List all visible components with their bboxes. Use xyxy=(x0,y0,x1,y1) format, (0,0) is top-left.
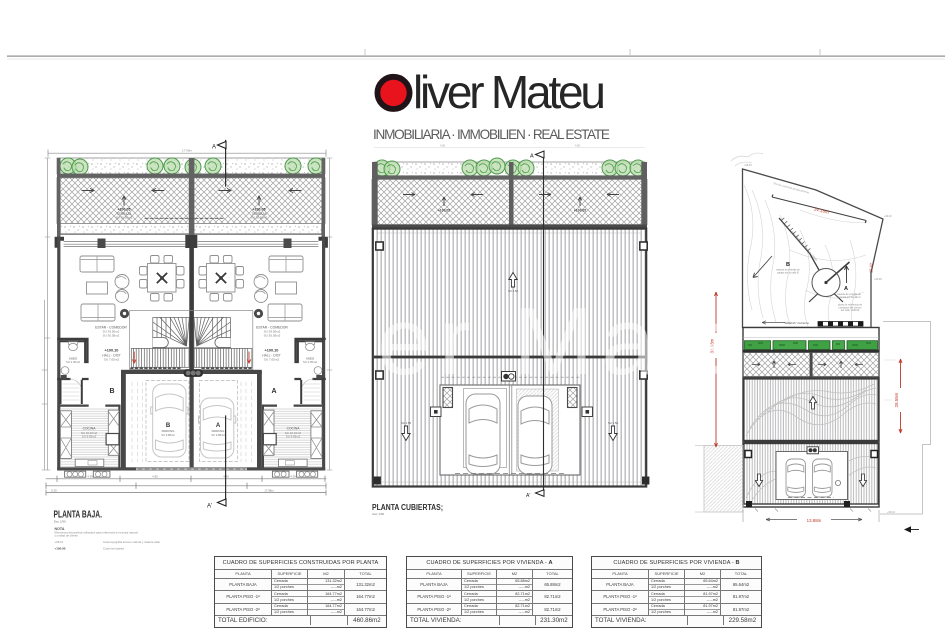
svg-text:PARKING: PARKING xyxy=(212,429,226,433)
svg-text:SU 30.50m2: SU 30.50m2 xyxy=(251,216,268,220)
svg-text:+99.10: +99.10 xyxy=(55,540,64,544)
svg-text:4.90: 4.90 xyxy=(440,144,446,148)
svg-text:liver Mateu: liver Mateu xyxy=(413,66,606,118)
svg-text:SU 30.50m2: SU 30.50m2 xyxy=(116,216,133,220)
svg-text:SU 30.05m2: SU 30.05m2 xyxy=(103,333,120,337)
svg-text:15.87: 15.87 xyxy=(868,262,873,273)
svg-text:A: A xyxy=(212,145,216,151)
svg-text:SU 1.56: SU 1.56 xyxy=(401,421,412,425)
svg-text:+100.00: +100.00 xyxy=(55,547,66,551)
svg-text:vivienda por la calle A: vivienda por la calle A xyxy=(837,296,861,299)
svg-text:SU 1.56: SU 1.56 xyxy=(608,421,619,425)
svg-text:17.98m: 17.98m xyxy=(264,489,274,493)
svg-text:0.25: 0.25 xyxy=(51,489,57,493)
svg-text:SU 9.88m2: SU 9.88m2 xyxy=(161,433,175,437)
svg-text:B: B xyxy=(109,388,114,395)
svg-text:4.90: 4.90 xyxy=(575,144,581,148)
svg-text:+100.05: +100.05 xyxy=(574,209,586,213)
svg-text:"SIRENA" Cubierta: "SIRENA" Cubierta xyxy=(783,321,809,325)
svg-text:Esc 1/90: Esc 1/90 xyxy=(373,512,385,516)
svg-text:SU 2.05m2: SU 2.05m2 xyxy=(66,360,80,364)
svg-text:+100.10: +100.10 xyxy=(265,349,279,353)
svg-text:del solar +100.00: del solar +100.00 xyxy=(841,309,860,312)
svg-text:A: A xyxy=(271,388,276,395)
svg-text:13.88m: 13.88m xyxy=(807,518,822,523)
svg-text:A: A xyxy=(530,154,534,160)
svg-text:28.55m: 28.55m xyxy=(894,392,899,407)
svg-text:Cota nivel planta: Cota nivel planta xyxy=(103,547,124,551)
svg-text:4.90: 4.90 xyxy=(223,475,229,479)
svg-text:A': A' xyxy=(526,493,530,499)
svg-text:4.90: 4.90 xyxy=(152,475,158,479)
svg-text:A: A xyxy=(216,423,221,429)
svg-text:SU 7.05m2: SU 7.05m2 xyxy=(264,357,279,361)
svg-text:+99.10: +99.10 xyxy=(887,510,896,514)
svg-text:SU 9.95m2: SU 9.95m2 xyxy=(82,435,97,439)
svg-text:SU 9.95m2: SU 9.95m2 xyxy=(286,435,301,439)
svg-text:INMOBILIARIA · IMMOBILIEN · RE: INMOBILIARIA · IMMOBILIEN · REAL ESTATE xyxy=(373,127,610,142)
svg-text:SU 9.88m2: SU 9.88m2 xyxy=(211,433,225,437)
svg-text:+100.10: +100.10 xyxy=(105,349,119,353)
svg-text:y unidad de cliente: y unidad de cliente xyxy=(55,534,79,538)
svg-text:SU 7.05m2: SU 7.05m2 xyxy=(104,357,119,361)
svg-text:SU 30.05m2: SU 30.05m2 xyxy=(264,333,281,337)
svg-text:4.39: 4.39 xyxy=(87,475,93,479)
svg-text:PARKING: PARKING xyxy=(162,429,176,433)
svg-text:Cota topografia terreno natura: Cota topografia terreno natural y rasant… xyxy=(103,540,160,544)
svg-text:SU 2.05m2: SU 2.05m2 xyxy=(303,360,317,364)
svg-text:PLANTA CUBIERTAS;: PLANTA CUBIERTAS; xyxy=(372,503,443,512)
svg-text:B: B xyxy=(786,262,790,268)
svg-text:+100.05: +100.05 xyxy=(438,209,450,213)
svg-text:17.99m: 17.99m xyxy=(182,149,193,153)
svg-text:garaje por la calle B: garaje por la calle B xyxy=(777,271,799,274)
svg-text:Esc 1/90: Esc 1/90 xyxy=(54,519,66,523)
svg-text:4.39: 4.39 xyxy=(290,475,296,479)
svg-text:+98.60: +98.60 xyxy=(744,164,752,167)
svg-text:A': A' xyxy=(207,504,212,510)
svg-text:+99.20: +99.20 xyxy=(884,215,892,218)
svg-text:+99.98: +99.98 xyxy=(874,278,882,281)
svg-text:A: A xyxy=(844,286,848,292)
svg-text:B: B xyxy=(166,423,171,429)
